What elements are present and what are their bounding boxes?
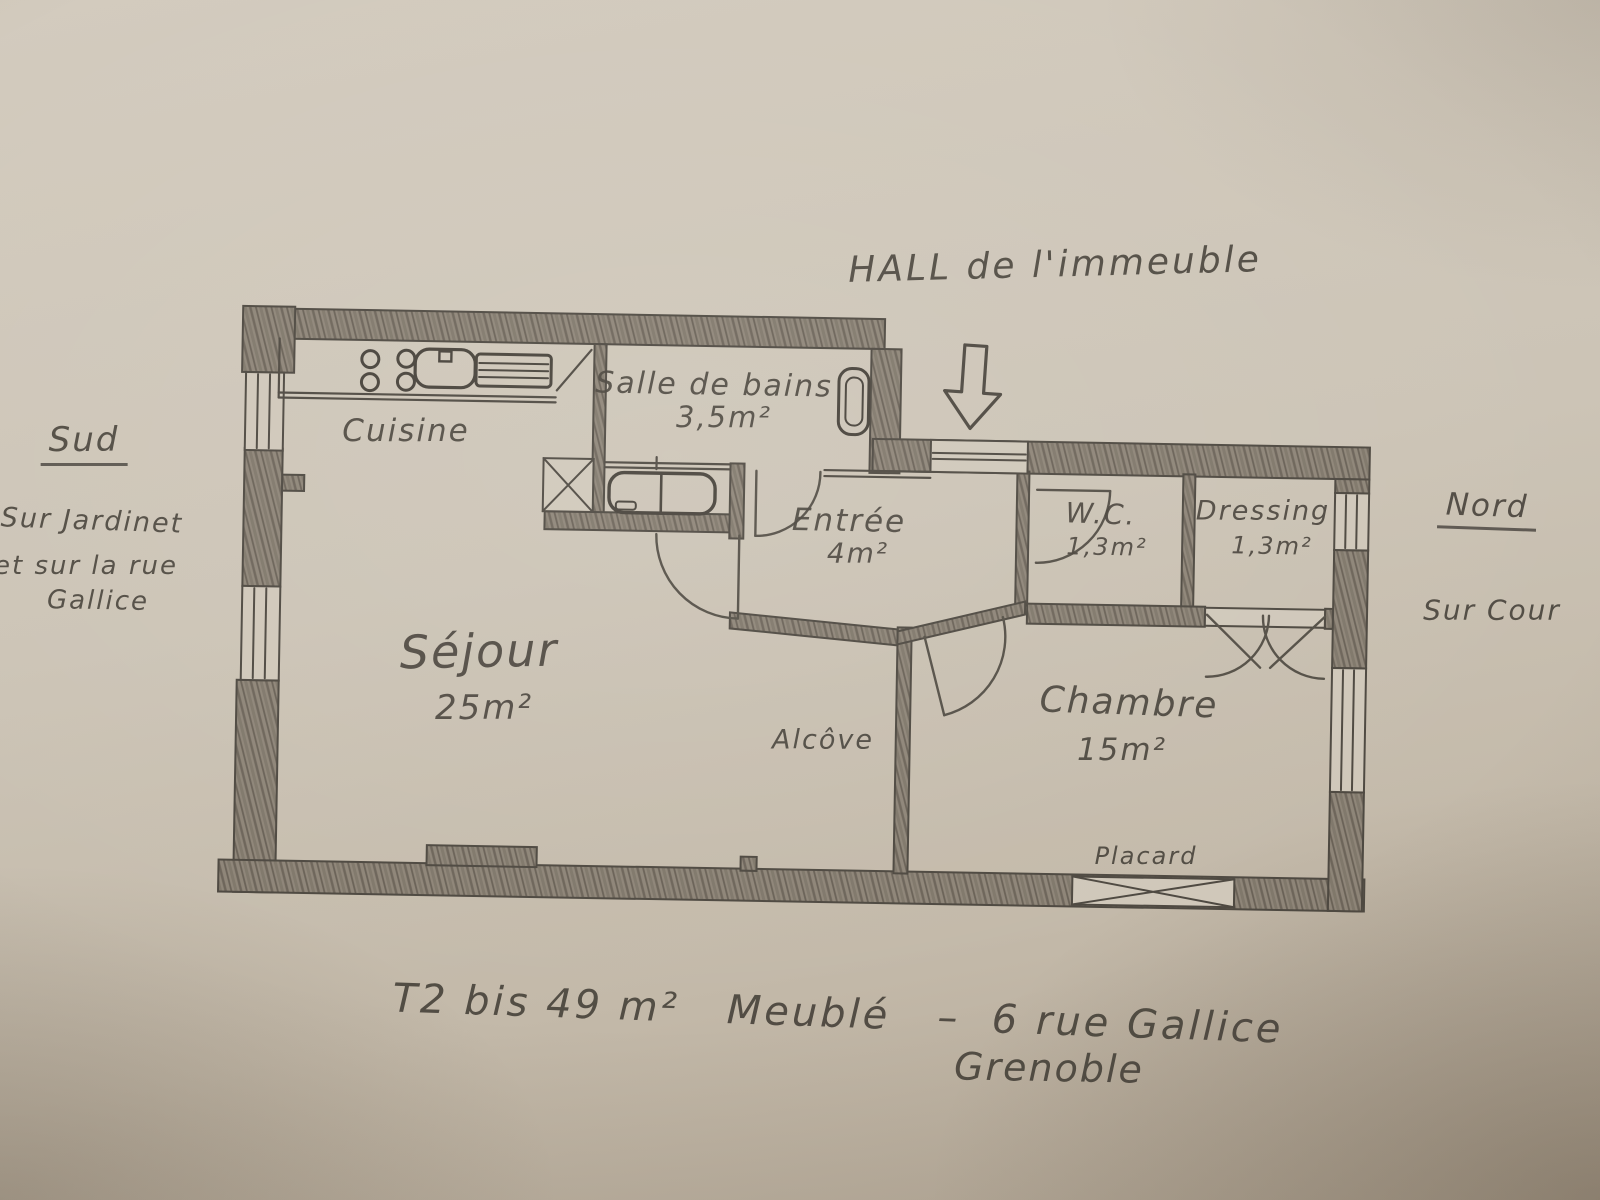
wall-door-post <box>729 463 744 538</box>
floor-plan-photo: HALL de l'immeuble Sud Sur Jardinet et s… <box>0 0 1600 1200</box>
towel-radiator-icon <box>838 368 869 435</box>
hall-entry-arrow-icon <box>942 344 1004 431</box>
wall-right-upper-stub <box>1335 479 1369 494</box>
stove-icon <box>361 349 415 391</box>
counter-end-diagonal <box>557 349 592 391</box>
window-right-1 <box>1334 493 1369 551</box>
wall-corner-top-left <box>242 306 295 373</box>
wall-sejour-chambre <box>893 627 911 873</box>
wall-wc-left <box>1015 471 1029 605</box>
counter-front-edge <box>279 393 556 403</box>
wall-sejour-block <box>427 845 537 867</box>
entry-door-opening <box>930 440 1028 474</box>
wall-right-mid <box>1332 550 1368 669</box>
wall-wc-dressing-divider <box>1181 474 1195 608</box>
wall-wc-row-bottom <box>1027 604 1205 627</box>
wall-alcove-stub <box>740 857 756 871</box>
bathroom-door <box>755 471 820 537</box>
wall-top-left-section <box>245 308 885 349</box>
counter-left-edge <box>279 339 280 398</box>
sink-icon <box>415 349 476 388</box>
sejour-alcove-door <box>655 534 739 618</box>
dish-rack-icon <box>476 354 552 387</box>
window-left-2 <box>241 586 281 681</box>
wall-right-lower <box>1328 792 1364 912</box>
bathroom-bottom-partition <box>604 462 730 469</box>
window-right-2 <box>1330 668 1366 793</box>
floor-plan-drawing <box>0 0 1600 1200</box>
dressing-door-opening <box>1205 608 1325 628</box>
bathtub-icon <box>609 472 716 514</box>
wall-entree-bottom <box>729 612 897 645</box>
wc-door <box>1036 490 1110 564</box>
wall-left-mid <box>242 448 282 587</box>
wall-left-stub <box>282 475 304 491</box>
